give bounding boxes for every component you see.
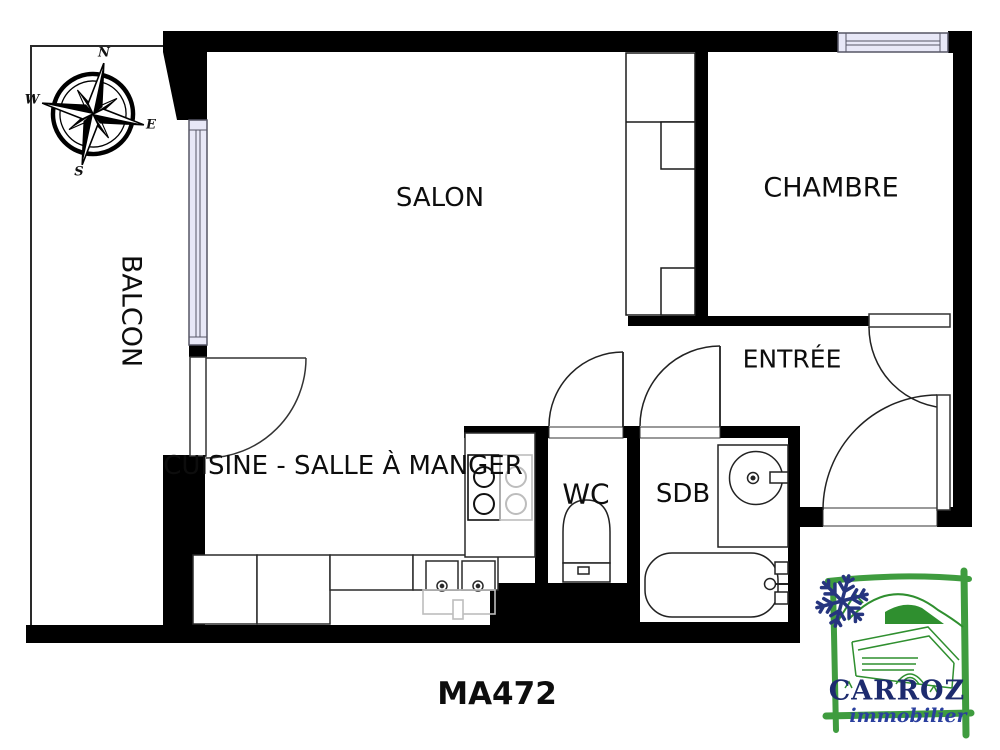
compass-south-label: S xyxy=(74,165,83,180)
plan-reference: MA472 xyxy=(437,676,557,712)
sink-fixture xyxy=(718,445,788,547)
sdb-door xyxy=(640,346,720,438)
entrance-door xyxy=(823,395,950,526)
door-swing-arc xyxy=(823,395,937,510)
bathtub-fixture xyxy=(645,553,788,617)
toilet-fixture xyxy=(563,500,610,582)
window-chambre xyxy=(838,33,948,52)
compass-west-label: W xyxy=(25,93,40,108)
floor-plan: SALON CHAMBRE BALCON ENTRÉE CUISINE - SA… xyxy=(0,0,1000,750)
compass-rose-icon xyxy=(31,52,154,175)
dishwasher-ghost xyxy=(423,590,495,619)
floor-plan-drawing xyxy=(0,0,1000,750)
room-label-wc: WC xyxy=(562,478,609,511)
room-label-salon: SALON xyxy=(396,183,484,213)
door-swing-arc xyxy=(640,346,720,426)
room-label-cuisine: CUISINE - SALLE À MANGER xyxy=(163,451,523,481)
balcony-door xyxy=(190,357,306,458)
room-label-entree: ENTRÉE xyxy=(743,345,842,374)
closet xyxy=(626,53,695,315)
compass-north-label: N xyxy=(98,46,110,61)
wc-door xyxy=(549,352,623,438)
room-label-chambre: CHAMBRE xyxy=(763,173,898,204)
window-balcony xyxy=(189,120,207,345)
door-swing-arc xyxy=(206,358,306,458)
chambre-door xyxy=(869,314,950,408)
logo-brand-text: CARROZ xyxy=(829,676,966,707)
logo-tagline-text: immobilier xyxy=(849,705,966,727)
room-label-sdb: SDB xyxy=(656,479,710,509)
room-label-balcon: BALCON xyxy=(116,255,147,367)
door-swing-arc xyxy=(549,352,623,426)
compass-east-label: E xyxy=(146,118,156,133)
